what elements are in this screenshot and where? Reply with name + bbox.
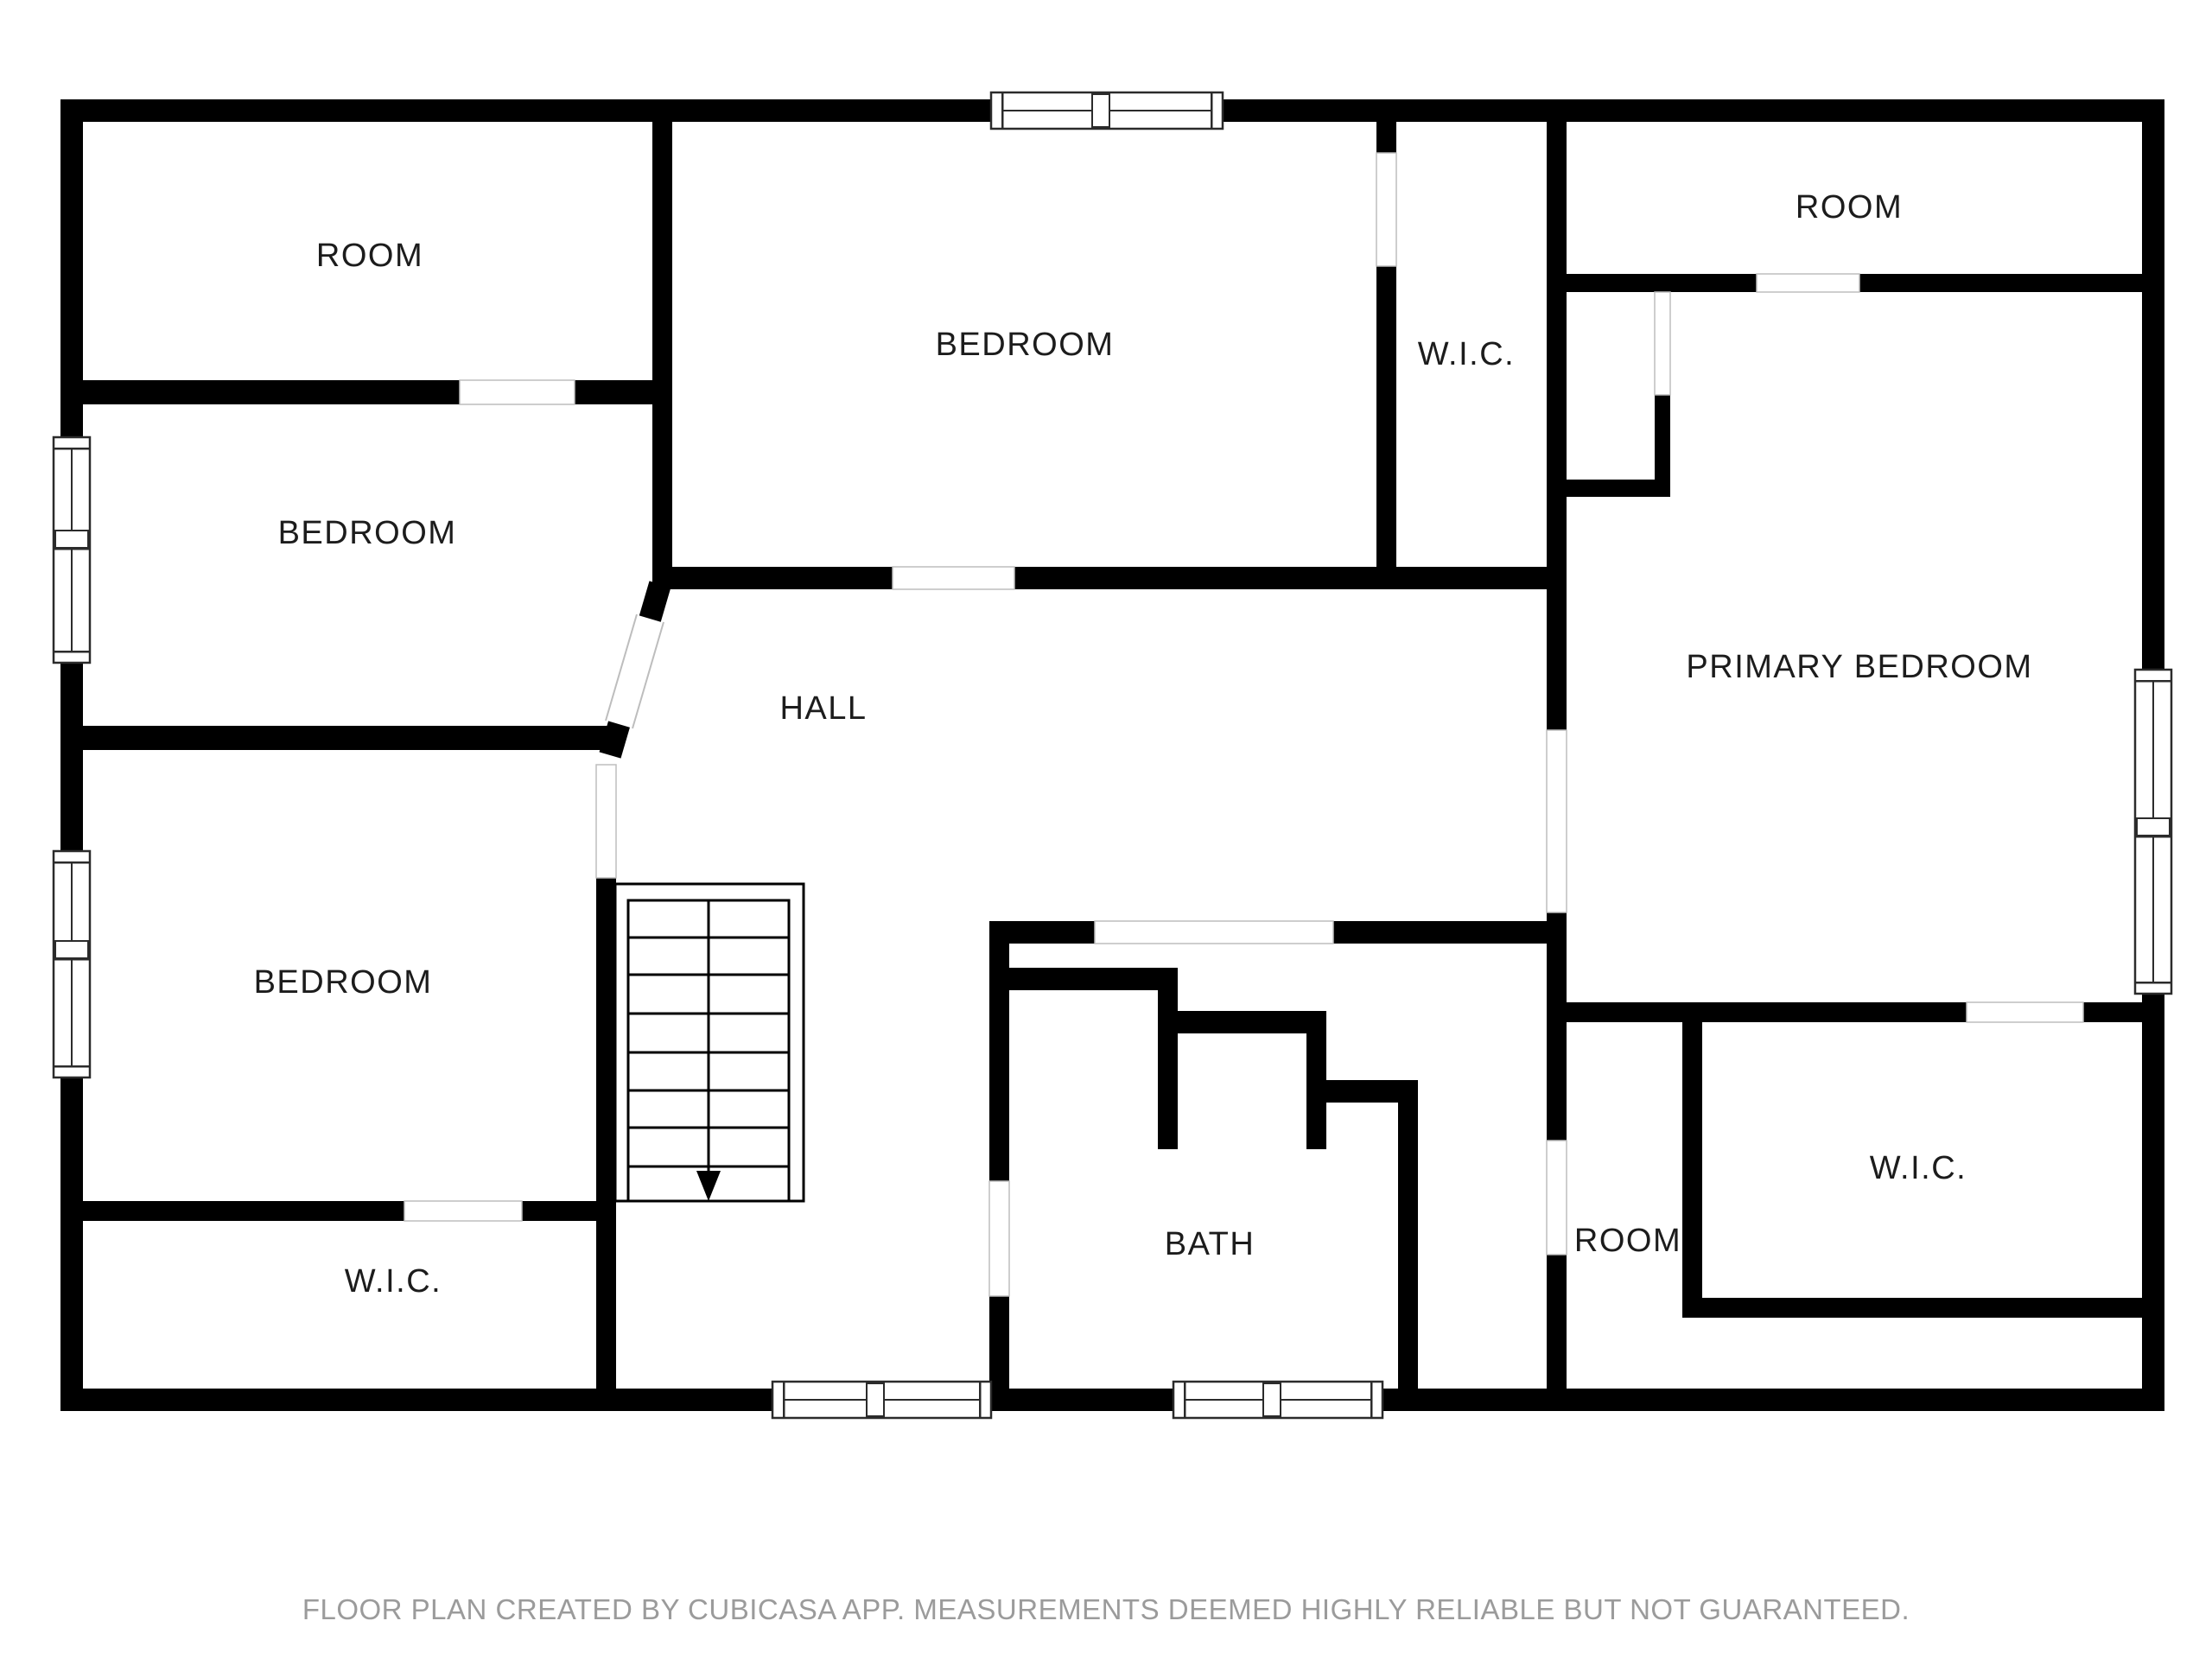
door-bottom-right-wic (1967, 1002, 2083, 1022)
outer-wall-left (60, 99, 83, 1411)
window-bottom-bath-bar-1 (1370, 1382, 1373, 1418)
wall-bath-step-2 (1178, 1011, 1326, 1033)
wall-upper-bedroom-east (652, 122, 672, 586)
door-top-middle-bedroom (893, 567, 1014, 589)
door-bottom-left-wic (404, 1201, 522, 1221)
outer-wall-bottom (60, 1389, 2164, 1411)
door-bath-side (989, 1181, 1009, 1296)
wall-bottom-room-east (1682, 1022, 1702, 1298)
room-label-bottom-middle: ROOM (1574, 1223, 1681, 1259)
window-bottom-hall-sash-divider (867, 1383, 884, 1416)
window-left-upper-bar-0 (54, 448, 90, 450)
wall-bottom-wic-south (1682, 1298, 2142, 1318)
door-top-right-room (1757, 274, 1859, 292)
wall-bath-east (1398, 1103, 1418, 1389)
wall-bath-north-b (1333, 921, 1547, 944)
room-label-top-right: ROOM (1796, 189, 1903, 226)
window-left-lower-sash-divider (55, 941, 88, 958)
bedroom-label-left-upper: BEDROOM (278, 515, 457, 551)
door-diagonal (619, 619, 650, 724)
bath-label: BATH (1165, 1226, 1255, 1262)
footer-disclaimer: FLOOR PLAN CREATED BY CUBICASA APP. MEAS… (0, 1593, 2212, 1626)
wic-label-top: W.I.C. (1418, 336, 1515, 372)
wall-middle-bedroom-south-b (1014, 567, 1547, 589)
primary-bedroom-label: PRIMARY BEDROOM (1686, 649, 2032, 685)
window-left-lower-bar-0 (54, 861, 90, 864)
wall-bath-west-b (989, 1296, 1009, 1389)
bedroom-label-left-lower: BEDROOM (254, 964, 433, 1001)
wall-bath-step-1 (1009, 968, 1178, 990)
wall-bath-step-1-drop (1158, 990, 1178, 1149)
wall-bottom-left-wic-north-b (522, 1201, 616, 1221)
door-lower-left-bedroom (596, 765, 616, 878)
window-bottom-bath-bar-0 (1184, 1382, 1186, 1418)
window-bottom-hall-bar-1 (979, 1382, 982, 1418)
hall-label: HALL (779, 690, 867, 727)
wall-bath-step-3 (1326, 1080, 1418, 1103)
wall-primary-west-c (1547, 1255, 1567, 1389)
window-top-middle-bar-0 (1001, 92, 1004, 129)
wall-top-wic-west-a (1376, 122, 1396, 153)
wall-bath-step-2-drop (1306, 1033, 1326, 1149)
wall-bottom-left-wic-north-a (83, 1201, 404, 1221)
door-primary-bedroom (1547, 730, 1567, 912)
wic-label-bottom-right: W.I.C. (1870, 1150, 1967, 1186)
wall-middle-bedroom-south-a (652, 567, 893, 589)
door-bottom-middle-room (1547, 1141, 1567, 1255)
wall-left-bedrooms-divider (83, 726, 615, 750)
floor-plan: ROOMBEDROOMW.I.C.ROOMBEDROOMPRIMARY BEDR… (0, 0, 2212, 1659)
window-left-upper-bar-3 (54, 651, 90, 653)
wall-top-wic-east-a (1547, 122, 1567, 730)
wall-bath-north-a (989, 921, 1095, 944)
window-top-middle-sash-divider (1092, 94, 1109, 127)
window-left-upper-sash-divider (55, 531, 88, 548)
door-top-wic (1376, 153, 1396, 266)
door-top-left-room (460, 380, 575, 404)
window-right-primary-bar-3 (2135, 982, 2171, 984)
wall-below-top-left-room-a (83, 380, 460, 404)
wall-stair-west (596, 878, 616, 1389)
window-left-lower-bar-3 (54, 1065, 90, 1068)
window-bottom-hall-bar-0 (783, 1382, 785, 1418)
wall-bath-west-a (989, 944, 1009, 1181)
wall-top-wic-west-b (1376, 266, 1396, 589)
wall-below-top-left-room-b (575, 380, 652, 404)
wall-primary-south-b (2083, 1002, 2142, 1022)
wall-primary-south-a (1567, 1002, 1967, 1022)
floor-plan-page: ROOMBEDROOMW.I.C.ROOMBEDROOMPRIMARY BEDR… (0, 0, 2212, 1659)
window-top-middle-bar-1 (1211, 92, 1213, 129)
window-bottom-bath-sash-divider (1263, 1383, 1281, 1416)
wall-top-right-room-south-a (1547, 274, 1757, 292)
room-label-top-left: ROOM (316, 238, 423, 274)
wall-primary-west-b (1547, 912, 1567, 1141)
door-bath-opening (1095, 921, 1333, 944)
wall-alcove-south (1567, 480, 1670, 497)
bedroom-label-top-middle: BEDROOM (936, 327, 1115, 363)
door-alcove (1655, 292, 1670, 395)
wall-top-right-room-south-b (1859, 274, 2142, 292)
window-right-primary-sash-divider (2137, 818, 2170, 836)
window-right-primary-bar-0 (2135, 680, 2171, 683)
wic-label-bottom-left: W.I.C. (345, 1263, 442, 1300)
